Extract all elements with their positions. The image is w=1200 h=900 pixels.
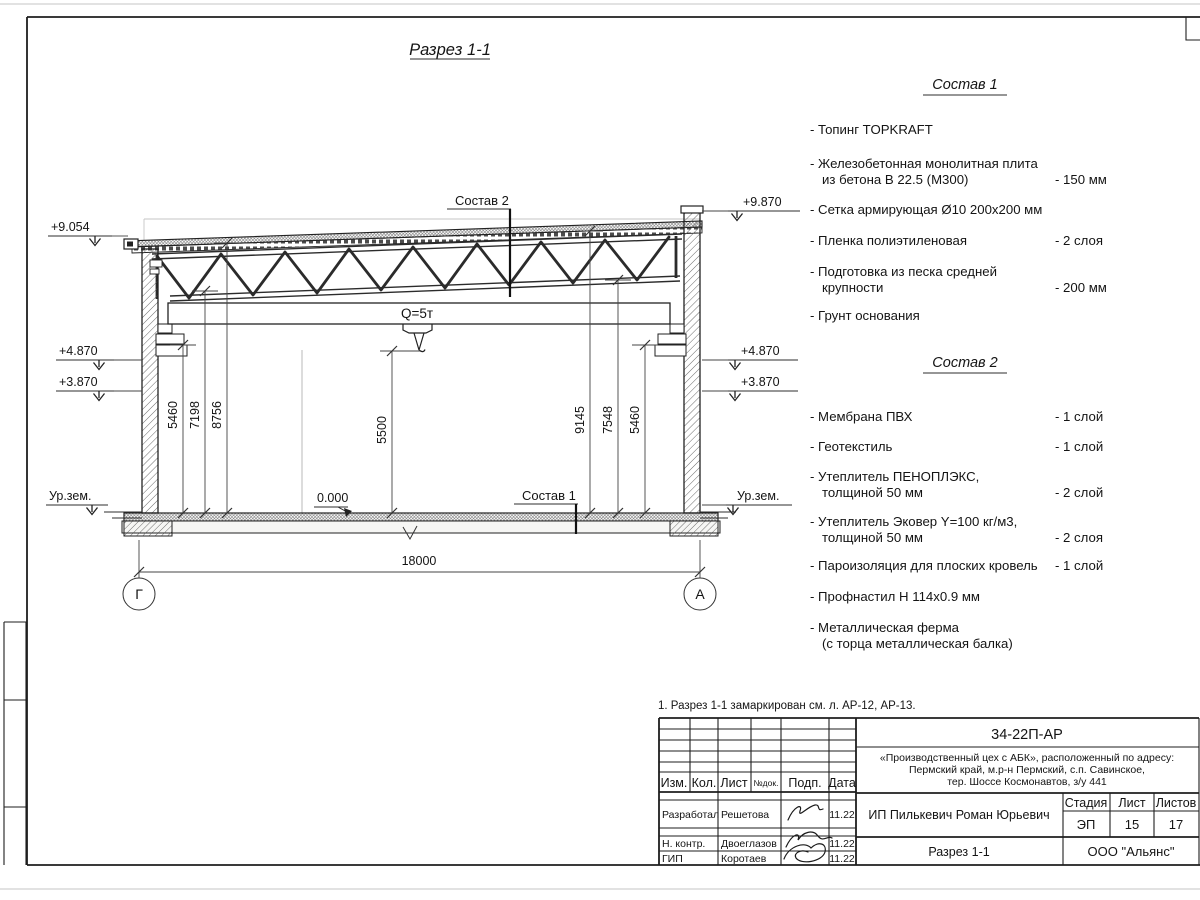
list-item-value: - 150 мм — [1055, 172, 1107, 187]
role-nkontr: Н. контр. — [662, 838, 705, 850]
list-item: (с торца металлическая балка) — [822, 636, 1013, 651]
list-item: - Железобетонная монолитная плита — [810, 156, 1039, 171]
dim-left-8756: 8756 — [210, 401, 224, 429]
grid-axes — [123, 578, 716, 610]
drawing-sheet: Разрез 1-1 — [0, 0, 1200, 900]
elev-l1: +9.054 — [51, 220, 90, 234]
axis-g: Г — [135, 586, 143, 602]
list-item: толщиной 50 мм — [822, 485, 923, 500]
vertical-dimensions — [170, 226, 658, 518]
left-margin-strip — [4, 622, 27, 865]
sostav2-title: Состав 2 — [932, 355, 997, 371]
list-item: - Мембрана ПВХ — [810, 409, 913, 424]
list-item-value: - 2 слоя — [1055, 233, 1103, 248]
elev-l3: +3.870 — [59, 375, 98, 389]
project-line2: Пермский край, м.р-н Пермский, с.п. Сави… — [909, 764, 1145, 776]
dim-left-7198: 7198 — [188, 401, 202, 429]
stage-label: Стадия — [1065, 796, 1108, 810]
dim-span-18000: 18000 — [402, 554, 437, 568]
list-item: - Металлическая ферма — [810, 620, 960, 635]
crane-rail-bracket-right — [655, 324, 686, 356]
sheet-label: Лист — [1118, 796, 1145, 810]
name-reshetova: Решетова — [721, 809, 769, 821]
date-nkontr: 11.22 — [829, 838, 855, 850]
crane-capacity-label: Q=5т — [401, 306, 433, 321]
list-item: - Пароизоляция для плоских кровель — [810, 558, 1038, 573]
list-item-value: - 2 слой — [1055, 485, 1103, 500]
list-item: - Профнастил Н 114х0.9 мм — [810, 589, 980, 604]
date-razrabotal: 11.22 — [829, 809, 855, 821]
sheet-number: 15 — [1125, 817, 1139, 832]
stamp-drawing-title: Разрез 1-1 — [928, 845, 989, 859]
col-izm: Изм. — [661, 776, 688, 790]
list-item-value: - 1 слой — [1055, 439, 1103, 454]
role-razrabotal: Разработал — [662, 809, 719, 821]
sostav2-ref-label: Состав 2 — [455, 193, 509, 208]
elev-r1: +9.870 — [743, 195, 782, 209]
dim-right-7548: 7548 — [601, 406, 615, 434]
project-line3: тер. Шоссе Космонавтов, з/у 441 — [947, 776, 1107, 788]
title-block: Изм. Кол. Лист №док. Подп. Дата Разработ… — [659, 718, 1199, 865]
date-gip: 11.22 — [829, 853, 855, 865]
left-wall — [142, 249, 162, 513]
dim-right-5460: 5460 — [628, 406, 642, 434]
col-kol: Кол. — [692, 776, 717, 790]
dim-right-9145: 9145 — [573, 406, 587, 434]
dim-center-5500: 5500 — [375, 416, 389, 444]
list-item-value: - 200 мм — [1055, 280, 1107, 295]
drawing-title: Разрез 1-1 — [409, 41, 491, 59]
axis-a: А — [695, 586, 705, 602]
stage-value: ЭП — [1077, 817, 1096, 832]
drawing-canvas: Разрез 1-1 — [0, 0, 1200, 900]
client-name: ИП Пилькевич Роман Юрьевич — [868, 808, 1049, 822]
sostav2-list: Состав 2 - Мембрана ПВХ - 1 слой - Геоте… — [810, 355, 1103, 651]
company-name: ООО "Альянс" — [1088, 844, 1175, 859]
list-item: из бетона В 22.5 (М300) — [822, 172, 968, 187]
list-item-value: - 1 слой — [1055, 558, 1103, 573]
list-item: - Топинг TOPKRAFT — [810, 122, 933, 137]
sostav1-list: Состав 1 - Топинг TOPKRAFT - Железобетон… — [810, 77, 1107, 323]
col-ndok: №док. — [754, 778, 779, 788]
name-korotaev: Коротаев — [721, 853, 767, 865]
right-wall — [681, 206, 703, 513]
crane-hook-icon — [414, 333, 425, 352]
crane-trolley — [403, 324, 432, 333]
signature-gip — [784, 844, 825, 862]
list-item: - Сетка армирующая Ø10 200х200 мм — [810, 202, 1042, 217]
signature-nkontr — [786, 832, 832, 847]
list-item: крупности — [822, 280, 883, 295]
signature-razrabotal — [788, 805, 823, 820]
list-item: - Утеплитель ПЕНОПЛЭКС, — [810, 469, 979, 484]
list-item: - Пленка полиэтиленовая — [810, 233, 967, 248]
sostav1-ref-label: Состав 1 — [522, 488, 576, 503]
list-item: толщиной 50 мм — [822, 530, 923, 545]
dim-left-5460: 5460 — [166, 401, 180, 429]
elev-r3: +3.870 — [741, 375, 780, 389]
sheets-label: Листов — [1156, 796, 1197, 810]
col-data: Дата — [828, 776, 856, 790]
col-list: Лист — [720, 776, 747, 790]
elev-l2: +4.870 — [59, 344, 98, 358]
name-dvoeglazov: Двоеглазов — [721, 838, 777, 850]
list-item-value: - 1 слой — [1055, 409, 1103, 424]
elev-r4: Ур.зем. — [737, 489, 779, 503]
sheet-note: 1. Разрез 1-1 замаркирован см. л. АР-12,… — [658, 700, 916, 712]
col-podp: Подп. — [788, 776, 821, 790]
zero-level-label: 0.000 — [317, 491, 348, 505]
list-item: - Грунт основания — [810, 308, 920, 323]
role-gip: ГИП — [662, 853, 683, 865]
crane-rail-bracket-left — [156, 324, 187, 356]
elevation-marks-right — [702, 211, 800, 515]
sheets-total: 17 — [1169, 817, 1183, 832]
elev-r2: +4.870 — [741, 344, 780, 358]
project-line1: «Производственный цех с АБК», расположен… — [880, 752, 1174, 764]
elev-l4: Ур.зем. — [49, 489, 91, 503]
list-item: - Геотекстиль — [810, 439, 893, 454]
list-item: - Утеплитель Эковер Y=100 кг/м3, — [810, 514, 1017, 529]
doc-number: 34-22П-АР — [991, 727, 1063, 743]
section-view: Q=5т Состав 2 Состав 1 — [46, 193, 800, 610]
list-item-value: - 2 слоя — [1055, 530, 1103, 545]
list-item: - Подготовка из песка средней — [810, 264, 997, 279]
sostav1-title: Состав 1 — [932, 77, 997, 93]
